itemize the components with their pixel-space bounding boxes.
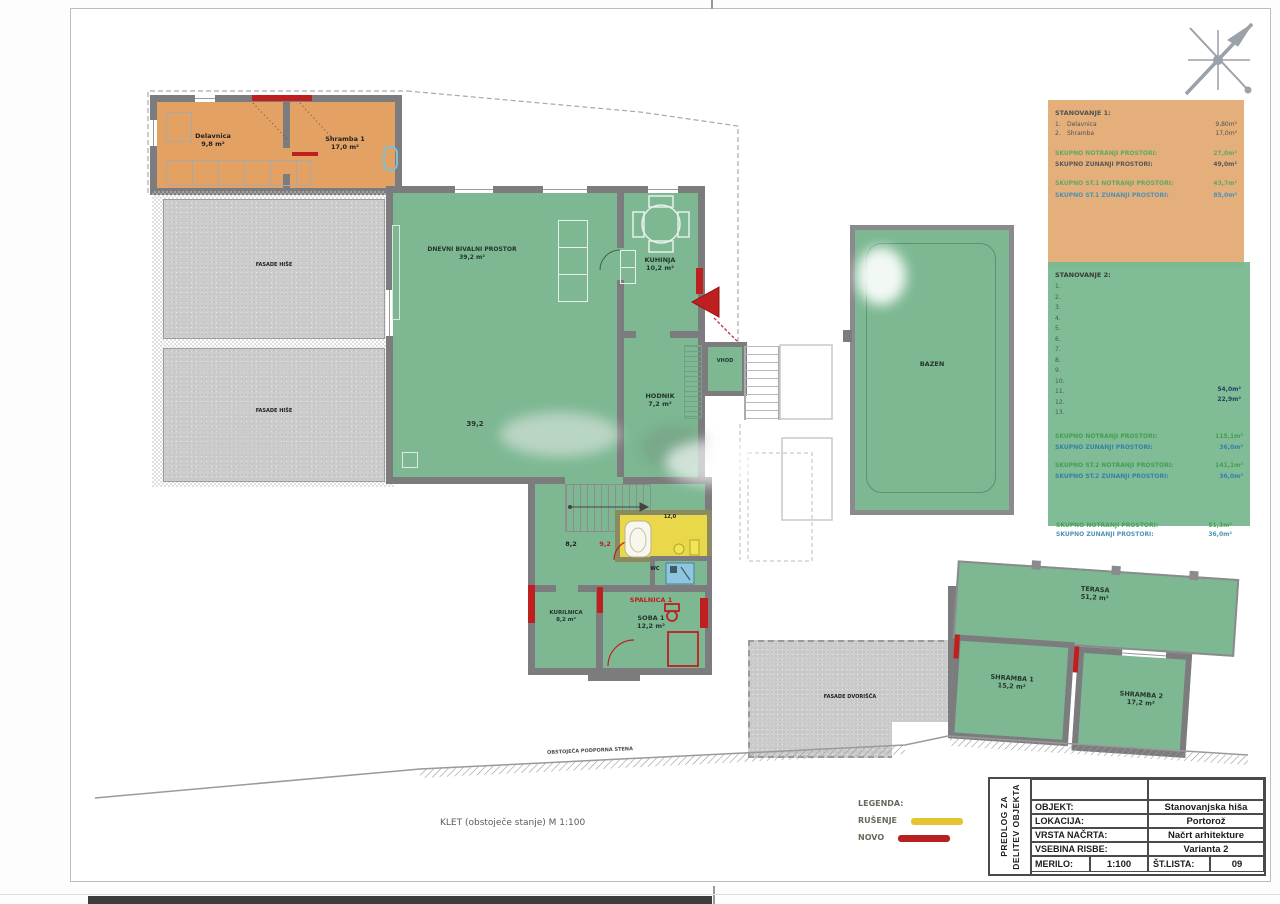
area-mark-kopalnica: 12,0	[655, 514, 685, 521]
totals-block: SKUPNO NOTRANJI PROSTORI:51,3m² SKUPNO Z…	[1056, 520, 1232, 538]
post	[1111, 566, 1121, 576]
new-wall-segment	[252, 95, 312, 101]
title-block: PREDLOG ZADELITEV OBJEKTA OBJEKT: Stanov…	[988, 777, 1266, 876]
summary-line: SKUPNO ST.1 ZUNANJI PROSTORI:85,0m²	[1055, 191, 1237, 200]
room-label-hodnik: HODNIK7,2 m²	[628, 392, 692, 409]
title-block-cell	[1148, 779, 1264, 800]
legend-item-novo: NOVO	[858, 834, 963, 842]
info-box-stanovanje-2: STANOVANJE 2: 1.2. 3.4. 5.6. 7.8. 9.10. …	[1048, 262, 1250, 526]
window	[150, 120, 157, 146]
room-label-bazen: BAZEN	[902, 360, 962, 368]
room-label-kurilnica: KURILNICA8,2 m²	[535, 610, 597, 624]
field-objekt-label: OBJEKT:	[1030, 800, 1148, 814]
info-box-stanovanje-1: STANOVANJE 1: 1. Delavnica 9,80m² 2. Shr…	[1048, 100, 1244, 268]
title-block-side-label: PREDLOG ZADELITEV OBJEKTA	[990, 779, 1032, 874]
window	[648, 186, 678, 193]
drawing-caption: KLET (obstoječe stanje) M 1:100	[440, 818, 585, 828]
exterior-stairs	[744, 346, 780, 420]
room-label-kuhinja: KUHINJA10,2 m²	[630, 256, 690, 273]
field-objekt-value: Stanovanjska hiša	[1148, 800, 1264, 814]
panel-label-fasada-b: FASADE HIŠE	[163, 408, 385, 415]
room-label-vhod: VHOD	[705, 358, 745, 365]
field-stlista-label: ŠT.LISTA:	[1148, 856, 1210, 872]
field-merilo-value: 1:100	[1090, 856, 1148, 872]
top-fold-mark	[711, 0, 713, 9]
field-merilo-label: MERILO:	[1030, 856, 1090, 872]
panel-fasada-b	[163, 348, 385, 482]
terrace-group: TERASA51,2 m² SHRAMBA 115,2 m² SHRAMBA 2…	[939, 558, 1248, 777]
door-opening	[636, 331, 670, 338]
room-label-dnevni: DNEVNI BIVALNI PROSTOR39,2 m²	[412, 246, 532, 262]
new-wall-segment	[700, 598, 708, 628]
legend-title: LEGENDA:	[858, 800, 963, 808]
window	[543, 186, 587, 193]
area-values: 54,0m²22,9m²	[1217, 385, 1241, 404]
room-vhod	[703, 342, 747, 396]
field-vsebina-value: Varianta 2	[1148, 842, 1264, 856]
room-label-delavnica: Delavnica9,8 m²	[178, 132, 248, 149]
room-kurilnica	[528, 585, 603, 675]
wall-tick	[843, 330, 852, 342]
summary-line: SKUPNO NOTRANJI PROSTORI:115,1m²	[1055, 432, 1243, 441]
field-lokacija-label: LOKACIJA:	[1030, 814, 1148, 828]
summary-line: SKUPNO ZUNANJI PROSTORI:36,0m²	[1056, 531, 1232, 538]
title-block-cell	[1030, 779, 1148, 800]
field-lokacija-value: Portorož	[1148, 814, 1264, 828]
summary-line: SKUPNO ST.1 NOTRANJI PROSTORI:43,7m²	[1055, 179, 1237, 188]
sofa-outline	[558, 220, 588, 302]
field-stlista-value: 09	[1210, 856, 1264, 872]
summary-line: SKUPNO ST.2 NOTRANJI PROSTORI:141,1m²	[1055, 461, 1243, 470]
door-opening	[556, 585, 578, 592]
info-item: 2. Shramba 17,0m²	[1055, 129, 1237, 138]
legend-item-rusenje: RUŠENJE	[858, 817, 963, 825]
legend-swatch-yellow	[911, 818, 963, 825]
summary-line: SKUPNO NOTRANJI PROSTORI:27,0m²	[1055, 149, 1237, 158]
panel-label-dvorisce: FASADE DVORIŠČA	[770, 694, 930, 701]
info-box-title: STANOVANJE 1:	[1055, 108, 1237, 118]
field-vrsta-value: Načrt arhitekture	[1148, 828, 1264, 842]
room-label-soba1: SOBA 112,2 m²	[606, 614, 696, 631]
kitchen-counter-outline	[166, 160, 311, 186]
fixture-outline	[402, 452, 418, 468]
room-dnevni-prostor	[386, 186, 624, 484]
page-edge-line	[0, 894, 1280, 895]
window	[195, 95, 215, 102]
post	[1189, 571, 1199, 581]
info-box-title: STANOVANJE 2:	[1055, 270, 1243, 280]
bottom-black-bar	[88, 896, 712, 904]
architectural-sheet: Delavnica9,8 m² Shramba 117,0 m² FASADE …	[0, 0, 1280, 904]
field-vsebina-label: VSEBINA RISBE:	[1030, 842, 1148, 856]
summary-line: SKUPNO ZUNANJI PROSTORI:49,0m²	[1055, 160, 1237, 169]
window	[455, 186, 493, 193]
area-mark-pralnica-old: 8,2	[558, 540, 584, 548]
legend: LEGENDA: RUŠENJE NOVO	[858, 800, 963, 842]
room-label-shramba1: Shramba 117,0 m²	[310, 135, 380, 152]
new-wall-segment	[597, 587, 603, 613]
area-mark-pralnica-new: 9,2	[592, 540, 618, 548]
new-wall-segment	[696, 268, 703, 294]
summary-line: SKUPNO ZUNANJI PROSTORI:36,0m²	[1055, 443, 1243, 452]
panel-label-fasada-a: FASADE HIŠE	[163, 262, 385, 269]
field-vrsta-label: VRSTA NAČRTA:	[1030, 828, 1148, 842]
area-mark-dnevni: 39,2	[455, 420, 495, 429]
post	[1031, 560, 1041, 570]
door-opening	[565, 477, 623, 484]
summary-line: SKUPNO ST.2 ZUNANJI PROSTORI:36,0m²	[1055, 472, 1243, 481]
room-label-spalnica-new: SPALNICA 1	[606, 596, 696, 604]
new-wall-segment	[528, 585, 535, 623]
info-item: 1. Delavnica 9,80m²	[1055, 120, 1237, 129]
panel-fasada-a	[163, 199, 385, 339]
shelf-outline	[392, 225, 400, 320]
wall-step	[588, 668, 640, 681]
bottom-fold-mark	[713, 886, 715, 904]
legend-swatch-red	[898, 835, 950, 842]
room-label-wc: WC	[646, 566, 664, 573]
summary-line: SKUPNO NOTRANJI PROSTORI:51,3m²	[1056, 522, 1232, 529]
